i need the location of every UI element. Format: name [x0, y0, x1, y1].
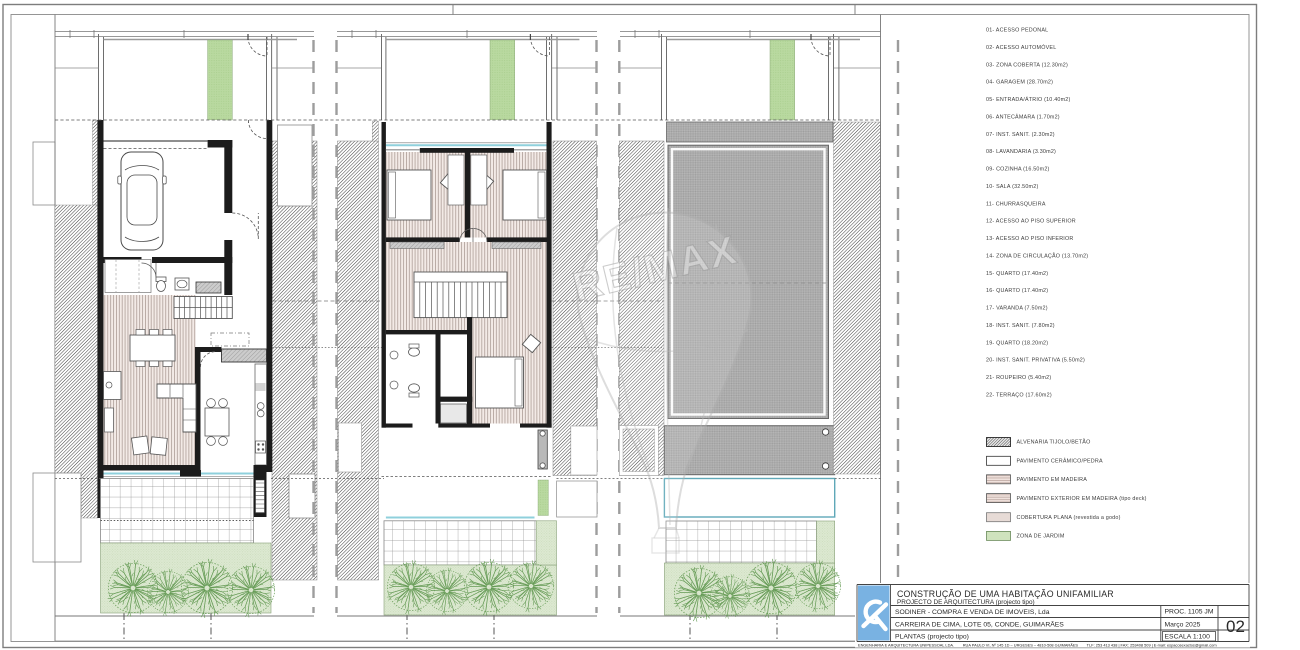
svg-text:04- GARAGEM (28.70m2): 04- GARAGEM (28.70m2): [986, 80, 1053, 86]
svg-text:18- INST. SANIT. (7.80m2): 18- INST. SANIT. (7.80m2): [986, 323, 1055, 329]
svg-text:ENGENHARIA E ARQUITECTURA UNIP: ENGENHARIA E ARQUITECTURA UNIPESSOAL LDA…: [858, 642, 1217, 647]
svg-text:01- ACESSO PEDONAL: 01- ACESSO PEDONAL: [986, 28, 1048, 34]
svg-text:07- INST. SANIT. (2.30m2): 07- INST. SANIT. (2.30m2): [986, 132, 1055, 138]
svg-text:11- CHURRASQUEIRA: 11- CHURRASQUEIRA: [986, 201, 1046, 207]
svg-text:13- ACESSO AO PISO INFERIOR: 13- ACESSO AO PISO INFERIOR: [986, 236, 1073, 242]
svg-text:20- INST. SANIT. PRIVATIVA (5.: 20- INST. SANIT. PRIVATIVA (5.50m2): [986, 358, 1085, 364]
svg-text:10- SALA (32.50m2): 10- SALA (32.50m2): [986, 184, 1038, 190]
svg-text:PLANTAS (projecto tipo): PLANTAS (projecto tipo): [895, 634, 969, 641]
svg-text:06- ANTECÂMARA (1.70m2): 06- ANTECÂMARA (1.70m2): [986, 113, 1060, 120]
svg-text:14- ZONA DE CIRCULAÇÃO (13.70m: 14- ZONA DE CIRCULAÇÃO (13.70m2): [986, 252, 1088, 259]
svg-text:Março 2025: Março 2025: [1165, 622, 1201, 629]
svg-text:PAVIMENTO CERÂMICO/PEDRA: PAVIMENTO CERÂMICO/PEDRA: [1017, 458, 1103, 465]
svg-text:03- ZONA COBERTA (12.30m2): 03- ZONA COBERTA (12.30m2): [986, 62, 1068, 68]
svg-text:15- QUARTO (17.40m2): 15- QUARTO (17.40m2): [986, 271, 1048, 277]
svg-text:PAVIMENTO EM MADEIRA: PAVIMENTO EM MADEIRA: [1017, 477, 1088, 483]
svg-text:05- ENTRADA/ÁTRIO (10.40m2): 05- ENTRADA/ÁTRIO (10.40m2): [986, 96, 1070, 103]
svg-text:17- VARANDA (7.50m2): 17- VARANDA (7.50m2): [986, 306, 1048, 312]
svg-text:08- LAVANDARIA (3.30m2): 08- LAVANDARIA (3.30m2): [986, 149, 1056, 155]
svg-text:PAVIMENTO EXTERIOR EM MADEIRA: PAVIMENTO EXTERIOR EM MADEIRA (tipo deck…: [1017, 496, 1147, 502]
svg-text:02: 02: [1226, 617, 1245, 636]
svg-text:02- ACESSO AUTOMÓVEL: 02- ACESSO AUTOMÓVEL: [986, 44, 1056, 51]
svg-text:CARREIRA DE CIMA, LOTE 05, CON: CARREIRA DE CIMA, LOTE 05, CONDE, GUIMAR…: [895, 620, 1064, 629]
svg-text:ALVENARIA TIJOLO/BETÃO: ALVENARIA TIJOLO/BETÃO: [1017, 439, 1091, 446]
svg-text:16- QUARTO (17.40m2): 16- QUARTO (17.40m2): [986, 288, 1048, 294]
svg-text:SODINER - COMPRA E VENDA DE IM: SODINER - COMPRA E VENDA DE IMOVEIS, Lda: [895, 609, 1050, 616]
svg-text:19- QUARTO (18.20m2): 19- QUARTO (18.20m2): [986, 340, 1048, 346]
svg-text:ZONA DE JARDIM: ZONA DE JARDIM: [1017, 534, 1065, 540]
svg-text:09- COZINHA (16.50m2): 09- COZINHA (16.50m2): [986, 167, 1050, 173]
svg-text:COBERTURA PLANA (revestida a g: COBERTURA PLANA (revestida a godo): [1017, 515, 1121, 521]
svg-text:21- ROUPEIRO (5.40m2): 21- ROUPEIRO (5.40m2): [986, 375, 1051, 381]
svg-text:PROJECTO DE ARQUITECTURA (proj: PROJECTO DE ARQUITECTURA (projecto tipo): [897, 599, 1035, 606]
svg-text:22- TERRAÇO (17.60m2): 22- TERRAÇO (17.60m2): [986, 393, 1052, 399]
svg-text:CONSTRUÇÃO DE UMA HABITAÇÃO UN: CONSTRUÇÃO DE UMA HABITAÇÃO UNIFAMILIAR: [897, 589, 1114, 599]
svg-text:12- ACESSO AO PISO SUPERIOR: 12- ACESSO AO PISO SUPERIOR: [986, 219, 1076, 225]
svg-text:ESCALA 1:100: ESCALA 1:100: [1165, 634, 1211, 641]
svg-text:PROC. 1105 JM: PROC. 1105 JM: [1165, 609, 1214, 616]
